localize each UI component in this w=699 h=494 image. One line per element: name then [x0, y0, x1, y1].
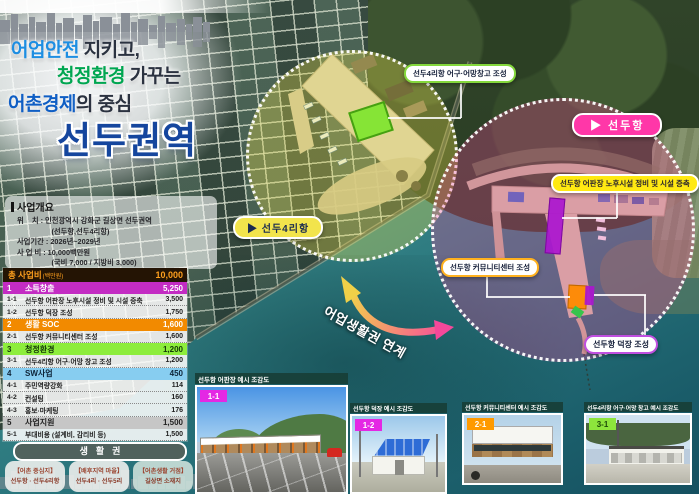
budget-row: 1-2선두항 덕장 조성1,750: [3, 306, 187, 318]
utility-pole: [359, 431, 361, 477]
label-gear-storage: 선두4리항 어구·어망창고 조성: [404, 64, 516, 83]
utility-pole: [436, 434, 438, 477]
photo-caption: 선두항 커뮤니티센터 예시 조감도: [462, 402, 563, 412]
title-line-2: 청정환경 가꾸는: [57, 61, 181, 88]
budget-row: 4-3홍보·마케팅176: [3, 404, 187, 416]
budget-table: 총 사업비 (백만원) 10,000 1소득창출5,250 1-1선두항 어판장…: [3, 268, 187, 441]
poster-canvas: 어업생활권 연계 선두4리항 어구·어망창고 조성 ▶ 선두항 선두항 어판장 …: [0, 0, 699, 494]
drain-pipe: [471, 471, 480, 480]
budget-row: 3-1선두4리항 어구·어망 창고 조성1,200: [3, 355, 187, 367]
label-fish-market: 선두항 어판장 노후시설 정비 및 시설 증축: [551, 174, 699, 193]
warehouse-doors: [611, 453, 682, 463]
budget-row: 1-1선두항 어판장 노후시설 정비 및 시설 증축3,500: [3, 294, 187, 306]
photo-gear-storage: 3-1: [584, 413, 692, 485]
label-drying-yard: 선두항 덕장 조성: [584, 335, 658, 354]
label-community-center: 선두항 커뮤니티센터 조성: [441, 258, 539, 277]
badge-seonduhang: ▶ 선두항: [572, 113, 662, 137]
ground: [586, 464, 690, 483]
living-zone-item: 【어촌생활 거점】 길상면 소재지: [133, 461, 193, 492]
budget-header-row: 총 사업비 (백만원) 10,000: [3, 268, 187, 282]
budget-row: 5-1부대비용 (설계비, 감리비 등)1,500: [3, 429, 187, 441]
title-line-1: 어업안전 지키고,: [11, 35, 139, 62]
overview-cost: 사 업 비 : 10,000백만원: [5, 248, 217, 259]
red-car: [327, 448, 342, 457]
living-zone-item: 【어촌 중심지】 선두항 · 선두4리항: [5, 461, 65, 492]
photo-badge: 3-1: [589, 418, 616, 430]
project-overview-box: 사업개요 위 치 : 인천광역시 강화군 길상면 선두권역 (선두항,선두4리항…: [5, 196, 217, 269]
photo-badge: 1-2: [355, 419, 382, 431]
budget-row: 2생활 SOC1,600: [3, 319, 187, 331]
budget-row: 4SW사업450: [3, 368, 187, 380]
parking-lines: [197, 453, 346, 492]
budget-row: 2-1선두항 커뮤니티센터 조성1,600: [3, 331, 187, 343]
overview-location-detail: (선두항,선두4리항): [5, 227, 217, 238]
utility-pole: [617, 420, 619, 447]
photo-badge: 2-1: [467, 418, 494, 430]
living-zone-items: 【어촌 중심지】 선두항 · 선두4리항 【배후지역 마을】 선두4리 · 선두…: [5, 461, 193, 492]
photo-community-center: 2-1: [462, 413, 563, 485]
budget-row: 4-1주민역량강화114: [3, 380, 187, 392]
overview-location: 위 치 : 인천광역시 강화군 길상면 선두권역: [5, 216, 217, 227]
window-band: [474, 445, 552, 451]
living-zone-item: 【배후지역 마을】 선두4리 · 선두5리: [69, 461, 129, 492]
overview-period: 사업기간 : 2026년~2029년: [5, 237, 217, 248]
photo-caption: 선두4리항 어구·어망 창고 예시 조감도: [584, 402, 692, 412]
photo-caption: 선두항 어판장 예시 조감도: [195, 373, 348, 384]
page-title: 선두권역: [57, 110, 197, 164]
overview-heading: 사업개요: [11, 199, 217, 214]
budget-row: 3청정환경1,200: [3, 343, 187, 355]
budget-row: 4-2컨설팅160: [3, 392, 187, 404]
photo-badge: 1-1: [200, 390, 227, 402]
budget-row: 5사업지원1,500: [3, 417, 187, 429]
heading-bar-icon: [11, 202, 14, 212]
budget-row: 1소득창출5,250: [3, 282, 187, 294]
photo-caption: 선두항 덕장 예시 조감도: [350, 403, 447, 413]
photo-drying-yard: 1-2: [350, 414, 447, 494]
door: [395, 460, 404, 475]
living-zone-heading: 생활권: [13, 442, 187, 461]
photo-fish-market: 1-1: [195, 385, 348, 494]
